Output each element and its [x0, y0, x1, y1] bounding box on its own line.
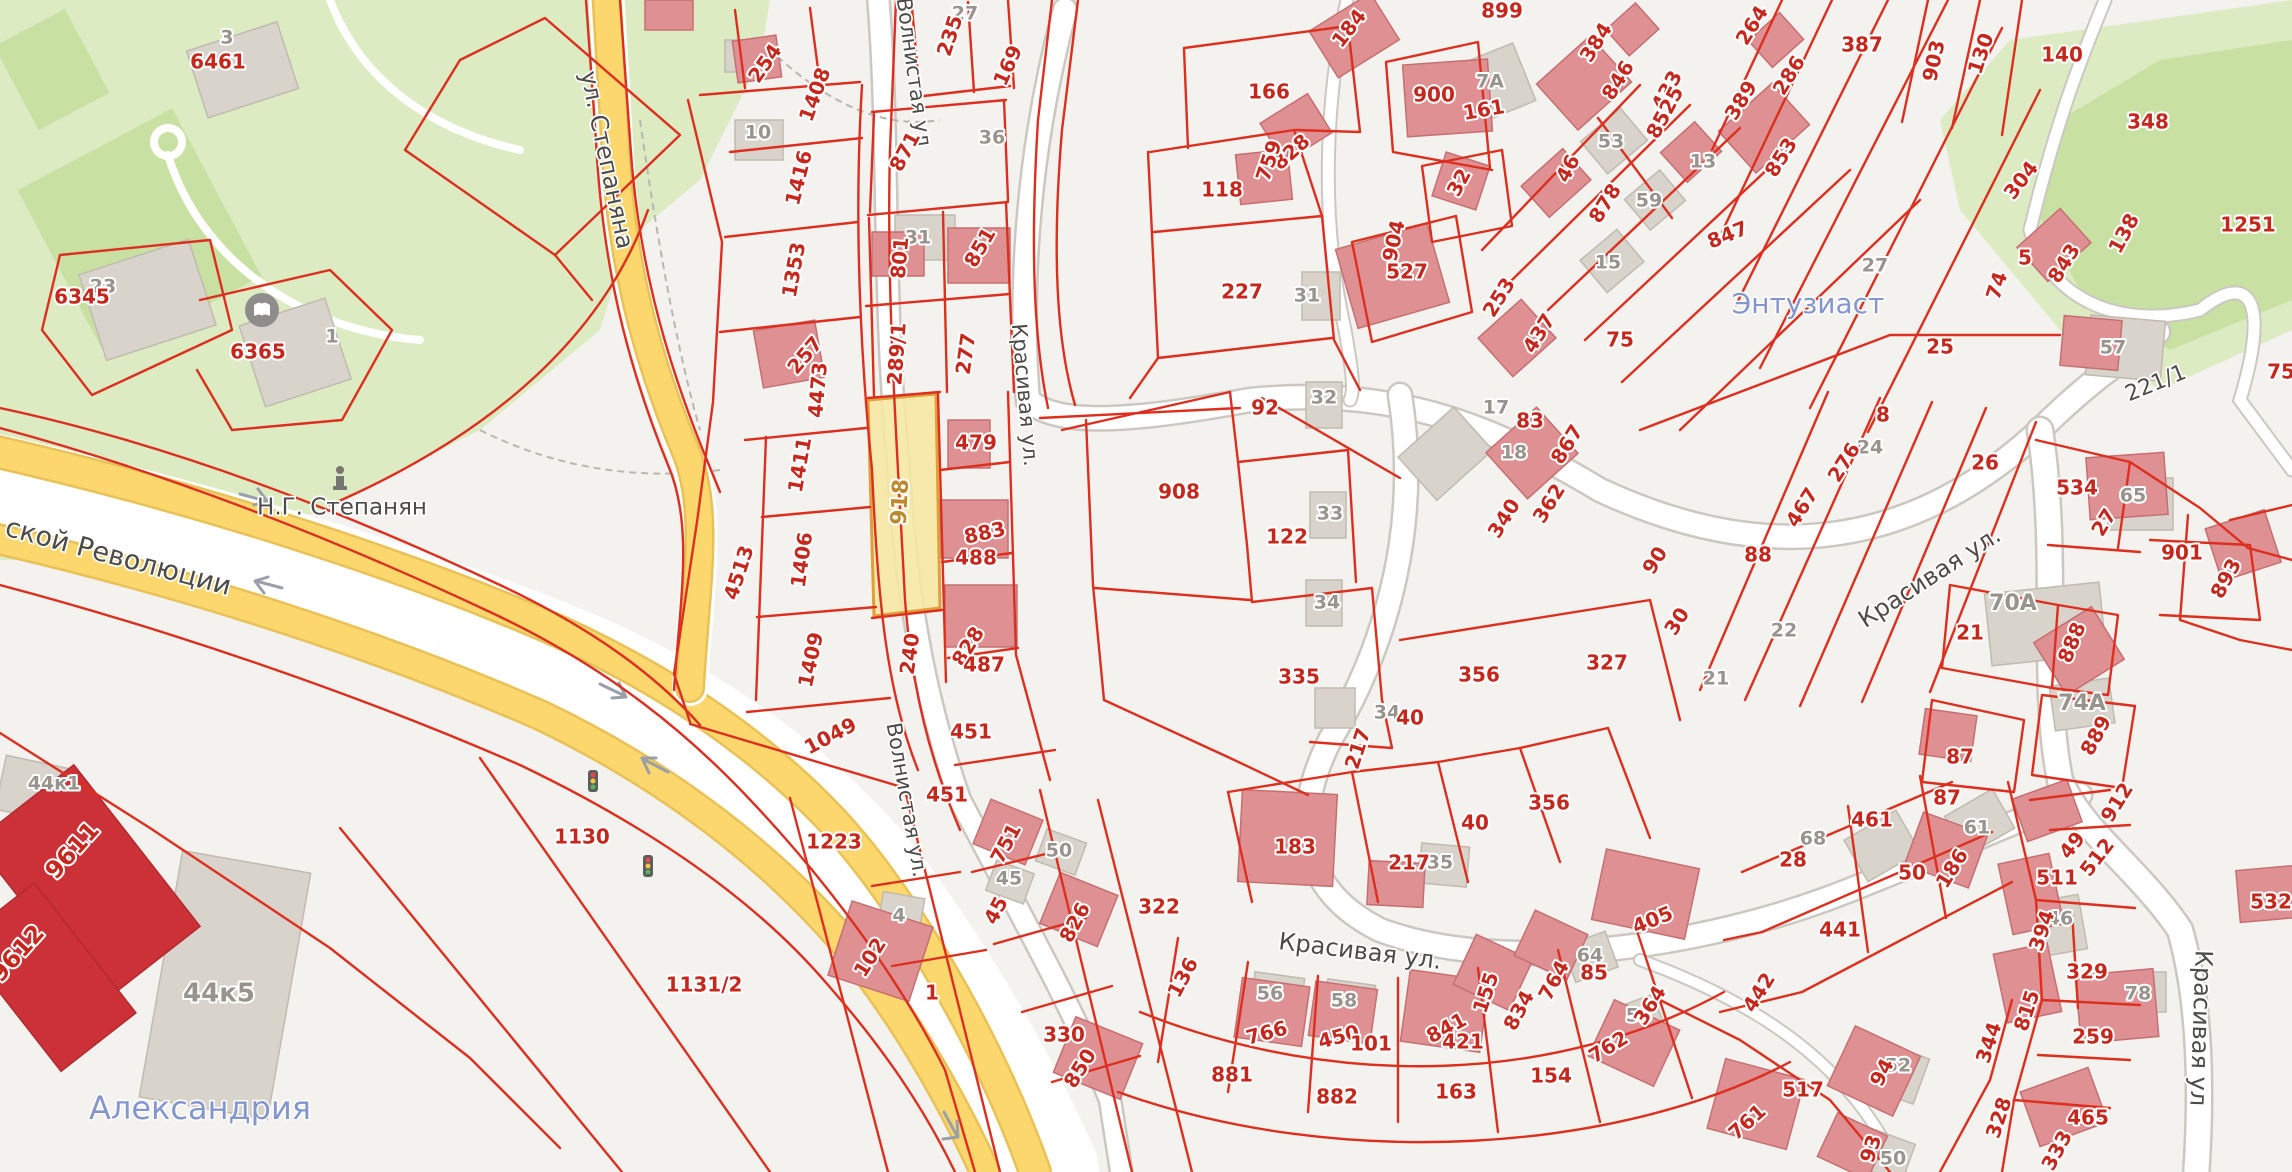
building-label: 56 — [1257, 983, 1283, 1005]
parcel-label[interactable]: 1353 — [777, 240, 810, 299]
building-label: 7А — [1476, 71, 1504, 93]
parcel-label[interactable]: 166 — [1248, 80, 1290, 104]
parcel-label[interactable]: 40 — [1461, 811, 1489, 835]
building-label: 32 — [1311, 387, 1337, 409]
building-label: 36 — [979, 127, 1005, 149]
selected-parcel-label[interactable]: 918 — [887, 478, 914, 525]
parcel-label[interactable]: 4513 — [719, 542, 759, 602]
building-label: 65 — [2120, 485, 2146, 507]
parcel-label[interactable]: 348 — [2127, 110, 2169, 134]
parcel-label[interactable]: 327 — [1586, 651, 1628, 675]
parcel-label[interactable]: 1406 — [786, 531, 818, 589]
parcel-label[interactable]: 908 — [1158, 480, 1200, 504]
parcel-label[interactable]: 163 — [1435, 1080, 1477, 1104]
building-label: 61 — [1964, 817, 1990, 839]
parcel-label[interactable]: 6365 — [230, 340, 286, 364]
building-label: 53 — [1598, 131, 1624, 153]
parcel-label[interactable]: 136 — [1162, 953, 1203, 1001]
parcel-label[interactable]: 88 — [1744, 543, 1772, 567]
building-label: 17 — [1483, 397, 1509, 419]
parcel-label[interactable]: 340 — [1482, 494, 1524, 542]
parcel-label[interactable]: 289/1 — [882, 322, 910, 386]
building-label: 21 — [1703, 668, 1729, 690]
parcel-label[interactable]: 75 — [1606, 328, 1634, 352]
parcel-label[interactable]: 92 — [1251, 396, 1279, 420]
building-label: 27 — [1862, 255, 1888, 277]
building-label: 33 — [1317, 503, 1343, 525]
parcel-label[interactable]: 461 — [1851, 808, 1893, 832]
parcel-label[interactable]: 87 — [1946, 745, 1974, 769]
parcel-label[interactable]: 28 — [1779, 848, 1807, 872]
traffic-light-icon — [588, 770, 598, 792]
parcel-label[interactable]: 451 — [926, 783, 968, 807]
parcel-label[interactable]: 344 — [1971, 1019, 2007, 1066]
building-label: 22 — [1771, 620, 1797, 642]
parcel-label[interactable]: 6345 — [54, 285, 110, 309]
parcel-label[interactable]: 487 — [963, 653, 1005, 677]
parcel-label[interactable]: 50 — [1898, 861, 1926, 885]
parcel-label[interactable]: 26 — [1971, 451, 1999, 475]
building-label: 58 — [1331, 990, 1357, 1012]
parcel-label[interactable]: 1131/2 — [666, 973, 743, 997]
building-label: 13 — [1690, 151, 1716, 173]
library-icon[interactable] — [245, 293, 279, 327]
parcel-label[interactable]: 899 — [1481, 0, 1523, 23]
parcel-label[interactable]: 451 — [950, 720, 992, 744]
parcel-label[interactable]: 122 — [1266, 525, 1308, 549]
building-label: 35 — [1427, 852, 1453, 874]
parcel-label[interactable]: 335 — [1278, 665, 1320, 689]
building-label: 57 — [2100, 337, 2126, 359]
parcel-label[interactable]: 488 — [955, 546, 997, 570]
parcel-label[interactable]: 8 — [1876, 403, 1890, 427]
parcel-label[interactable]: 30 — [1659, 603, 1694, 639]
building-label: 70А — [1989, 591, 2037, 616]
parcel-label[interactable]: 217 — [1388, 851, 1430, 875]
parcel-label[interactable]: 6461 — [190, 50, 246, 74]
building-label: 74А — [2058, 691, 2106, 716]
parcel-label[interactable]: 183 — [1274, 835, 1316, 859]
parcel-label[interactable]: 322 — [1138, 895, 1180, 919]
parcel-label[interactable]: 154 — [1530, 1064, 1572, 1088]
parcel-label[interactable]: 75 — [2267, 360, 2292, 384]
parcel-label[interactable]: 259 — [2072, 1025, 2114, 1049]
parcel-label[interactable]: 169 — [988, 41, 1027, 89]
parcel-label[interactable]: 356 — [1528, 791, 1570, 815]
building-label: 59 — [1636, 190, 1662, 212]
parcel-label[interactable]: 101 — [1350, 1032, 1392, 1056]
parcel-label[interactable]: 140 — [2041, 43, 2083, 67]
street-label: Н.Г. Степанян — [257, 495, 427, 521]
street-label: Волнистая ул — [892, 0, 937, 148]
street-label: Красивая ул — [2184, 949, 2217, 1106]
parcel-label[interactable]: 329 — [2066, 960, 2108, 984]
place-label: Энтузиаст — [1732, 287, 1885, 320]
parcel-label[interactable]: 1130 — [554, 825, 610, 849]
building-label: 31 — [1294, 285, 1320, 307]
building-label: 50 — [1046, 840, 1072, 862]
building-label: 44к1 — [28, 773, 81, 795]
parcel-label[interactable]: 421 — [1442, 1030, 1484, 1054]
building-label: 68 — [1800, 828, 1826, 850]
parcel-label[interactable]: 21 — [1956, 621, 1984, 645]
parcel-label[interactable]: 87 — [1933, 786, 1961, 810]
building-label: 18 — [1501, 442, 1527, 464]
parcel-label[interactable]: 387 — [1841, 33, 1883, 57]
parcel-label[interactable]: 1409 — [793, 630, 828, 689]
park-areas — [0, 0, 2292, 785]
parcel-label[interactable]: 534 — [2056, 476, 2098, 500]
parcel-label[interactable]: 511 — [2036, 866, 2078, 890]
parcel-label[interactable]: 90 — [1637, 542, 1672, 578]
parcel-label[interactable]: 40 — [1396, 706, 1424, 730]
parcel-label[interactable]: 479 — [955, 431, 997, 455]
parcel-label[interactable]: 1251 — [2220, 213, 2276, 237]
parcel-label[interactable]: 235 — [932, 12, 968, 59]
parcel-label[interactable]: 118 — [1201, 178, 1243, 202]
parcel-label[interactable]: 465 — [2067, 1106, 2109, 1130]
parcel-label[interactable]: 801 — [886, 236, 914, 280]
parcel-label[interactable]: 1416 — [780, 148, 817, 208]
cadastral-map[interactable]: ул. Степанянаской РеволюцииВолнистая улВ… — [0, 0, 2292, 1172]
parcel-label[interactable]: 83 — [1516, 409, 1544, 433]
building-label: 44к5 — [183, 979, 255, 1009]
map-canvas[interactable]: ул. Степанянаской РеволюцииВолнистая улВ… — [0, 0, 2292, 1172]
parcel-label[interactable]: 517 — [1782, 1078, 1824, 1102]
parcel-label[interactable]: 881 — [1211, 1063, 1253, 1087]
parcel-label[interactable]: 1223 — [806, 830, 862, 854]
parcel-label[interactable]: 1 — [925, 981, 939, 1005]
parcel-label[interactable]: 4473 — [803, 361, 832, 419]
parcel-label[interactable]: 25 — [1926, 335, 1954, 359]
building-label: 10 — [745, 122, 771, 144]
parcel-label[interactable]: 5 — [2018, 246, 2032, 270]
traffic-light-icon — [643, 855, 653, 877]
building-label: 45 — [996, 868, 1022, 890]
building-label: 34 — [1314, 592, 1340, 614]
building-label: 50 — [1880, 1148, 1906, 1170]
building-label: 1 — [325, 326, 338, 348]
parcel-label[interactable]: 900 — [1413, 83, 1455, 107]
parcel-label[interactable]: 532 — [2250, 890, 2292, 914]
building-label: 4 — [892, 905, 905, 927]
parcel-label[interactable]: 356 — [1458, 663, 1500, 687]
building-label: 15 — [1595, 252, 1621, 274]
parcel-label[interactable]: 441 — [1819, 918, 1861, 942]
building-label: 3 — [220, 27, 233, 49]
parcel-label[interactable]: 1049 — [800, 712, 860, 759]
parcel-label[interactable]: 882 — [1316, 1085, 1358, 1109]
parcel-label[interactable]: 277 — [951, 331, 981, 376]
parcel-label[interactable]: 901 — [2161, 541, 2203, 565]
parcel-label[interactable]: 85 — [1580, 961, 1608, 985]
parcel-label[interactable]: 878 — [1583, 179, 1625, 227]
parcel-label[interactable]: 903 — [1917, 38, 1949, 84]
building-label: 78 — [2125, 983, 2151, 1005]
parcel-label[interactable]: 227 — [1221, 280, 1263, 304]
parcel-label[interactable]: 330 — [1043, 1023, 1085, 1047]
parcel-label[interactable]: 328 — [1981, 1094, 2017, 1141]
parcel-label[interactable]: 74 — [1981, 269, 2012, 303]
place-label: Александрия — [89, 1089, 311, 1127]
parcel-label[interactable]: 1411 — [783, 435, 816, 494]
parcel-label[interactable]: 527 — [1386, 260, 1428, 284]
